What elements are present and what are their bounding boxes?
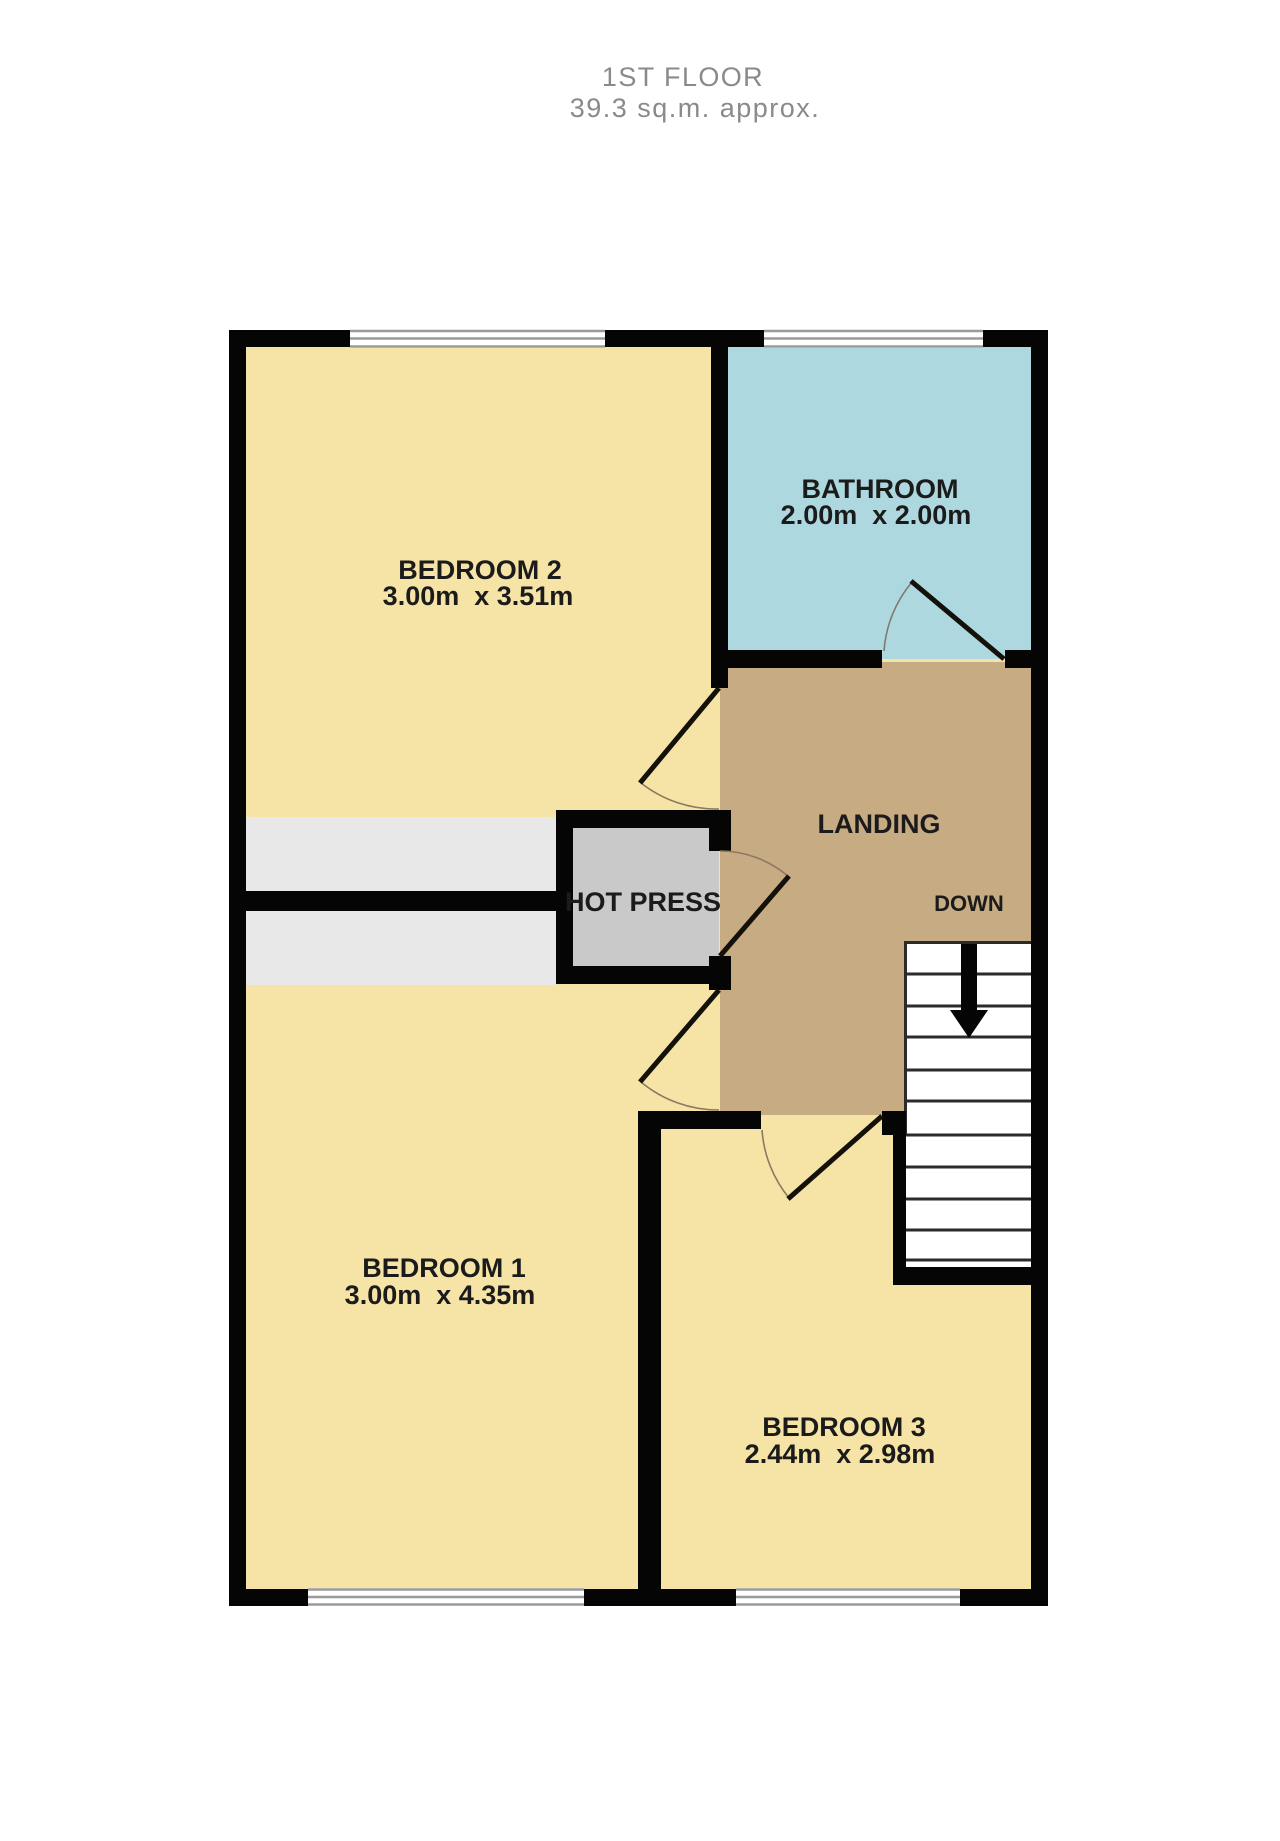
svg-text:3.00m x 4.35m: 3.00m x 4.35m xyxy=(345,1280,536,1310)
svg-text:1ST FLOOR: 1ST FLOOR xyxy=(602,62,764,92)
svg-text:BEDROOM 1: BEDROOM 1 xyxy=(362,1253,526,1283)
svg-text:BEDROOM 3: BEDROOM 3 xyxy=(762,1412,926,1442)
svg-text:LANDING: LANDING xyxy=(818,809,941,839)
svg-text:3.00m x 3.51m: 3.00m x 3.51m xyxy=(383,581,574,611)
svg-text:DOWN: DOWN xyxy=(934,891,1004,916)
svg-text:HOT PRESS: HOT PRESS xyxy=(565,887,721,917)
svg-text:2.44m x 2.98m: 2.44m x 2.98m xyxy=(745,1439,936,1469)
svg-text:2.00m x 2.00m: 2.00m x 2.00m xyxy=(781,500,972,530)
svg-text:39.3 sq.m. approx.: 39.3 sq.m. approx. xyxy=(570,93,821,123)
